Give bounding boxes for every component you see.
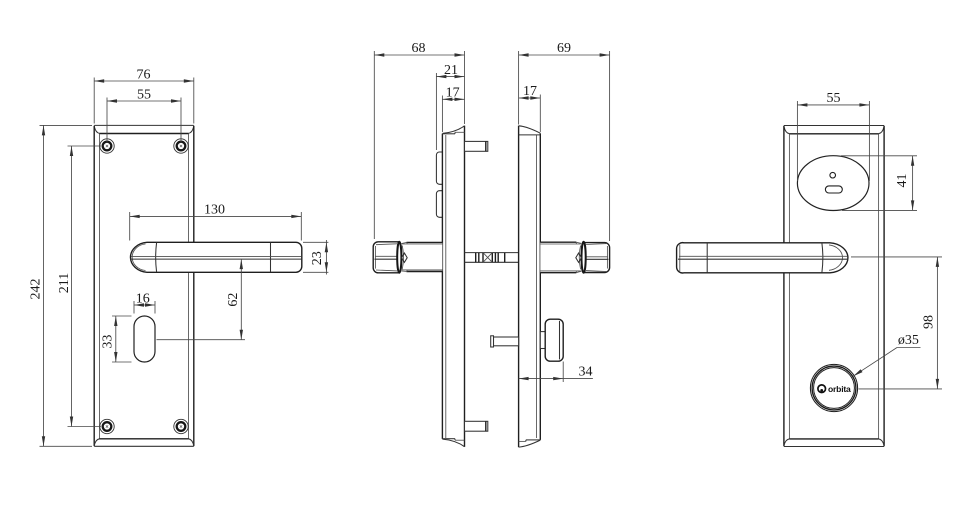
svg-text:55: 55 [137, 87, 151, 102]
svg-text:69: 69 [557, 41, 571, 56]
svg-text:17: 17 [446, 86, 460, 101]
svg-text:242: 242 [29, 279, 44, 300]
svg-text:17: 17 [523, 84, 537, 99]
svg-text:34: 34 [579, 364, 593, 379]
svg-text:23: 23 [310, 251, 325, 265]
svg-text:62: 62 [226, 293, 241, 307]
svg-text:21: 21 [444, 63, 458, 78]
svg-text:16: 16 [136, 291, 150, 306]
svg-text:41: 41 [895, 174, 910, 188]
svg-text:68: 68 [412, 41, 426, 56]
svg-text:98: 98 [922, 315, 937, 329]
svg-text:130: 130 [204, 203, 225, 218]
svg-text:orbita: orbita [828, 384, 851, 394]
svg-text:ø35: ø35 [898, 333, 919, 348]
svg-text:211: 211 [57, 273, 72, 293]
svg-text:33: 33 [100, 335, 115, 349]
svg-text:55: 55 [827, 91, 841, 106]
svg-text:76: 76 [137, 67, 151, 82]
